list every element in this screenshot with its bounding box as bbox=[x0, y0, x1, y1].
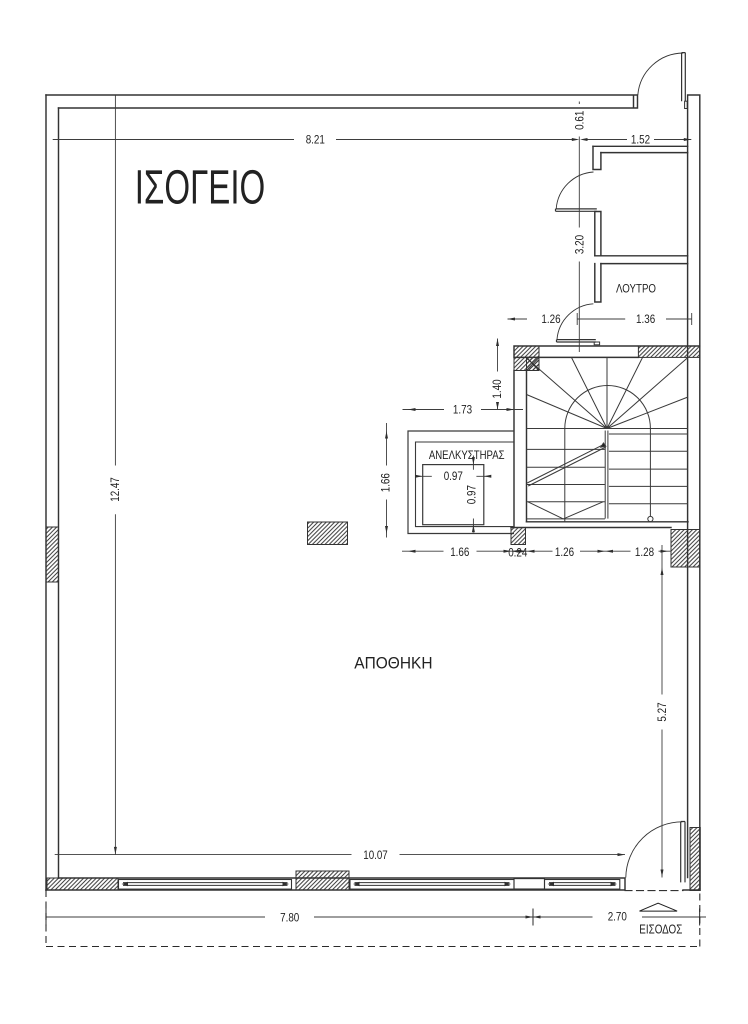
svg-text:0.24: 0.24 bbox=[508, 547, 528, 559]
svg-text:1.52: 1.52 bbox=[631, 134, 650, 146]
svg-text:1.66: 1.66 bbox=[380, 473, 392, 492]
svg-text:ΙΣΟΓΕΙΟ: ΙΣΟΓΕΙΟ bbox=[135, 161, 266, 215]
svg-text:1.36: 1.36 bbox=[636, 314, 655, 326]
svg-text:ΑΠΟΘΗΚΗ: ΑΠΟΘΗΚΗ bbox=[354, 655, 432, 673]
svg-text:1.66: 1.66 bbox=[450, 547, 469, 559]
svg-text:ΑΝΕΛΚΥΣΤΗΡΑΣ: ΑΝΕΛΚΥΣΤΗΡΑΣ bbox=[429, 448, 505, 462]
svg-text:1.28: 1.28 bbox=[635, 547, 654, 559]
svg-text:5.27: 5.27 bbox=[657, 702, 669, 721]
svg-text:7.80: 7.80 bbox=[280, 913, 299, 925]
svg-text:1.26: 1.26 bbox=[541, 314, 560, 326]
svg-text:1.40: 1.40 bbox=[492, 379, 504, 398]
svg-text:2.70: 2.70 bbox=[608, 912, 627, 924]
svg-text:ΛΟΥΤΡΟ: ΛΟΥΤΡΟ bbox=[616, 281, 656, 295]
svg-text:0.61: 0.61 bbox=[574, 111, 586, 130]
svg-text:12.47: 12.47 bbox=[110, 477, 122, 502]
svg-text:10.07: 10.07 bbox=[363, 850, 388, 862]
svg-text:ΕΙΣΟΔΟΣ: ΕΙΣΟΔΟΣ bbox=[639, 921, 682, 936]
svg-text:3.20: 3.20 bbox=[574, 235, 586, 254]
svg-text:1.26: 1.26 bbox=[555, 547, 574, 559]
svg-text:0.97: 0.97 bbox=[444, 471, 463, 483]
svg-text:1.73: 1.73 bbox=[453, 405, 472, 417]
svg-text:8.21: 8.21 bbox=[306, 135, 325, 147]
svg-text:0.97: 0.97 bbox=[467, 485, 479, 504]
